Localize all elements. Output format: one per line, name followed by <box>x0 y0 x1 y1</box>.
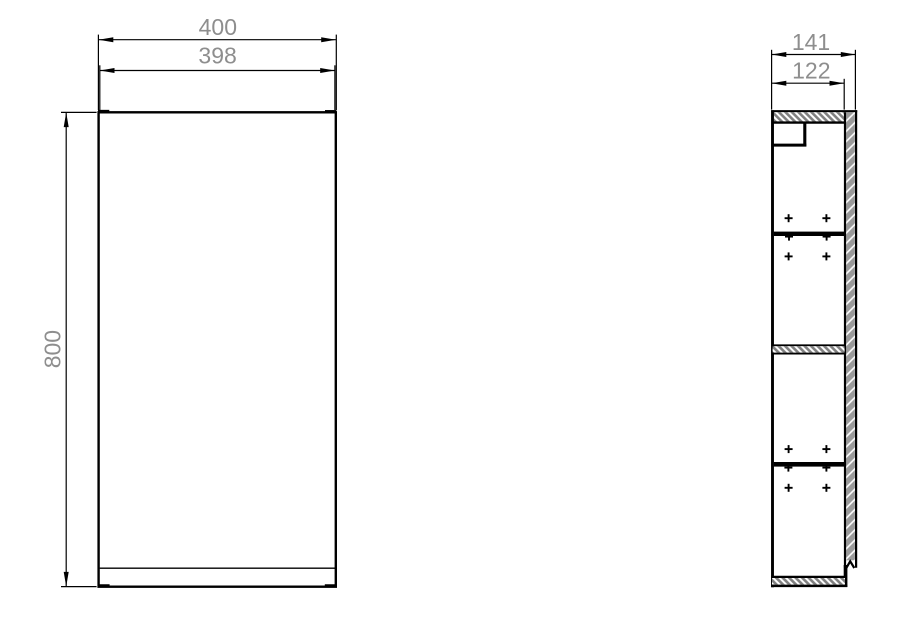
svg-text:141: 141 <box>792 29 830 55</box>
svg-text:800: 800 <box>40 330 66 368</box>
svg-text:400: 400 <box>199 14 237 40</box>
svg-text:398: 398 <box>198 42 236 68</box>
svg-text:122: 122 <box>792 58 830 84</box>
